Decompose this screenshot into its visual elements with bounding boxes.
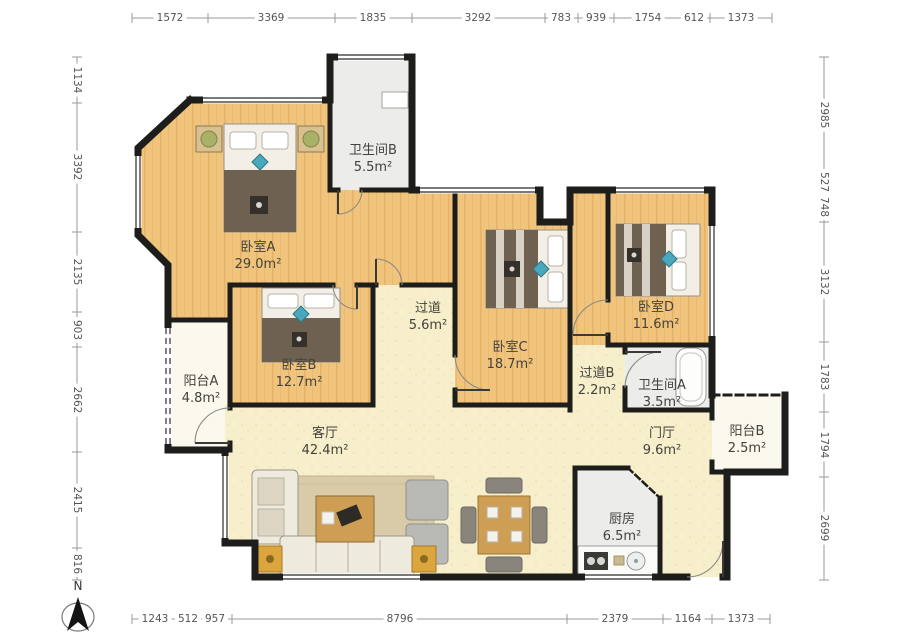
room-name: 卫生间B bbox=[349, 143, 397, 160]
room-label-bathroom-b: 卫生间B 5.5m² bbox=[349, 143, 397, 177]
room-name: 过道B bbox=[580, 366, 615, 383]
room-area: 12.7m² bbox=[276, 375, 323, 392]
room-area: 6.5m² bbox=[603, 529, 642, 546]
dim-left-6: 816 bbox=[71, 551, 83, 577]
room-area: 29.0m² bbox=[235, 257, 282, 274]
dim-top-8: 1373 bbox=[725, 12, 758, 24]
room-area: 42.4m² bbox=[302, 443, 349, 460]
room-name: 卧室C bbox=[492, 340, 527, 357]
dim-bottom-1: 512 bbox=[175, 613, 201, 625]
dim-top-7: 612 bbox=[681, 12, 707, 24]
compass-icon bbox=[62, 597, 94, 631]
dim-right-4: 1783 bbox=[818, 361, 830, 394]
room-label-bedroom-d: 卧室D 11.6m² bbox=[633, 300, 680, 334]
room-name: 厨房 bbox=[609, 512, 635, 529]
bed-bedroom-b bbox=[262, 288, 340, 362]
dim-left-0: 1134 bbox=[71, 64, 83, 97]
dim-right-5: 1794 bbox=[818, 429, 830, 462]
dim-left-5: 2415 bbox=[71, 484, 83, 517]
dim-bottom-4: 2379 bbox=[599, 613, 632, 625]
floorplan-page: 卧室A 29.0m² 卫生间B 5.5m² 过道 5.6m² 卧室B 12.7m… bbox=[0, 0, 900, 640]
room-area: 4.8m² bbox=[182, 391, 221, 408]
room-name: 卧室A bbox=[241, 240, 276, 257]
room-name: 阳台A bbox=[184, 374, 219, 391]
bathroom-b-shelf bbox=[382, 92, 408, 108]
room-name: 卫生间A bbox=[638, 378, 686, 395]
room-label-balcony-b: 阳台B 2.5m² bbox=[728, 424, 767, 458]
dim-bottom-3: 8796 bbox=[384, 613, 417, 625]
bed-bedroom-c bbox=[486, 230, 570, 308]
dim-top-2: 1835 bbox=[357, 12, 390, 24]
room-label-balcony-a: 阳台A 4.8m² bbox=[182, 374, 221, 408]
room-name: 客厅 bbox=[312, 426, 338, 443]
room-label-bedroom-c: 卧室C 18.7m² bbox=[487, 340, 534, 374]
dim-top-0: 1572 bbox=[154, 12, 187, 24]
dim-top-3: 3292 bbox=[462, 12, 495, 24]
dim-left-4: 2662 bbox=[71, 384, 83, 417]
room-name: 过道 bbox=[415, 301, 441, 318]
room-area: 2.5m² bbox=[728, 441, 767, 458]
room-label-bedroom-b: 卧室B 12.7m² bbox=[276, 358, 323, 392]
room-name: 门厅 bbox=[649, 426, 675, 443]
room-label-corridor: 过道 5.6m² bbox=[409, 301, 448, 335]
dim-bottom-6: 1373 bbox=[725, 613, 758, 625]
room-label-kitchen: 厨房 6.5m² bbox=[603, 512, 642, 546]
floorplan-drawing bbox=[0, 0, 900, 640]
room-area: 5.5m² bbox=[354, 160, 393, 177]
room-label-corridor-b: 过道B 2.2m² bbox=[578, 366, 617, 400]
room-name: 卧室D bbox=[638, 300, 674, 317]
room-label-living-room: 客厅 42.4m² bbox=[302, 426, 349, 460]
dim-left-2: 2135 bbox=[71, 256, 83, 289]
compass-north-label: N bbox=[74, 579, 83, 593]
dim-right-6: 2699 bbox=[818, 512, 830, 545]
room-area: 2.2m² bbox=[578, 383, 617, 400]
room-label-bedroom-a: 卧室A 29.0m² bbox=[235, 240, 282, 274]
room-name: 阳台B bbox=[730, 424, 765, 441]
room-area: 11.6m² bbox=[633, 317, 680, 334]
dim-bottom-0: 1243 bbox=[139, 613, 172, 625]
room-area: 3.5m² bbox=[643, 395, 682, 412]
dim-left-3: 903 bbox=[71, 317, 83, 343]
dim-right-2: 748 bbox=[818, 194, 830, 220]
dim-bottom-2: 957 bbox=[202, 613, 228, 625]
room-name: 卧室B bbox=[282, 358, 317, 375]
room-area: 9.6m² bbox=[643, 443, 682, 460]
living-room-furniture bbox=[252, 470, 448, 576]
bed-bedroom-d bbox=[616, 224, 700, 296]
dim-bottom-5: 1164 bbox=[672, 613, 705, 625]
dim-top-5: 939 bbox=[583, 12, 609, 24]
room-label-bathroom-a: 卫生间A 3.5m² bbox=[638, 378, 686, 412]
dim-top-4: 783 bbox=[548, 12, 574, 24]
room-label-foyer: 门厅 9.6m² bbox=[643, 426, 682, 460]
room-area: 18.7m² bbox=[487, 357, 534, 374]
dim-left-1: 3392 bbox=[71, 151, 83, 184]
room-area: 5.6m² bbox=[409, 318, 448, 335]
dim-top-6: 1754 bbox=[632, 12, 665, 24]
dim-right-1: 527 bbox=[818, 169, 830, 195]
dim-right-0: 2985 bbox=[818, 99, 830, 132]
kitchen-counter bbox=[578, 546, 658, 576]
dim-top-1: 3369 bbox=[255, 12, 288, 24]
dim-right-3: 3132 bbox=[818, 266, 830, 299]
